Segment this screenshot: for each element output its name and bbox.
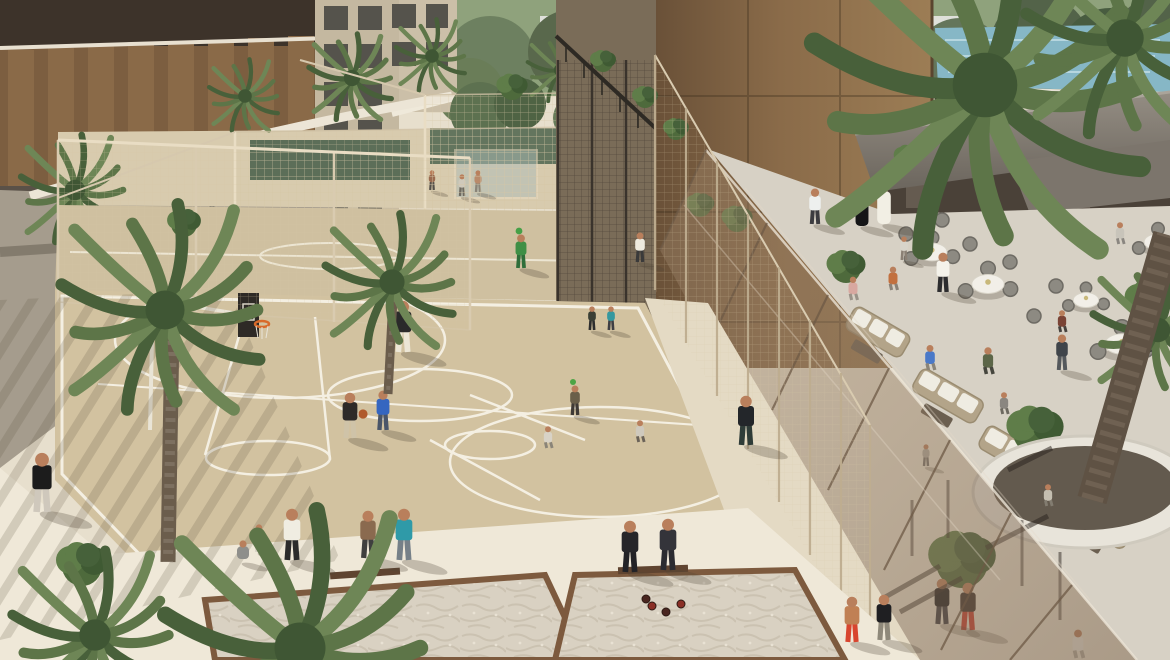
head [572, 385, 579, 392]
torso [983, 354, 993, 367]
torso [1116, 228, 1124, 239]
table-food [1084, 296, 1088, 300]
torso [237, 546, 249, 559]
foliage [508, 74, 522, 88]
head [879, 595, 890, 606]
torso [1000, 398, 1008, 409]
head [35, 453, 49, 467]
sports-deck-rendering [0, 0, 1170, 660]
head [984, 347, 991, 354]
torso [1044, 490, 1052, 501]
ball [516, 228, 523, 235]
head [901, 236, 907, 242]
chair [1063, 300, 1074, 311]
rendering-canvas [0, 0, 1170, 660]
chair [981, 261, 996, 276]
head [740, 396, 752, 408]
head [345, 393, 356, 404]
head [938, 253, 947, 262]
torso [1058, 316, 1066, 327]
head [890, 267, 896, 273]
head [517, 235, 525, 243]
head [239, 540, 246, 547]
foliage [842, 251, 860, 269]
head [624, 521, 636, 533]
torso [937, 261, 950, 277]
torso [570, 392, 580, 404]
head [850, 277, 856, 283]
head [608, 306, 614, 312]
torso [622, 531, 639, 552]
torso [660, 529, 677, 550]
chair [1003, 255, 1017, 269]
chair [963, 237, 977, 251]
foliage [76, 543, 100, 567]
chair [1080, 282, 1091, 293]
head [847, 597, 858, 608]
torso [396, 519, 413, 540]
torso [809, 196, 821, 210]
head [637, 232, 644, 239]
torso [1056, 342, 1068, 356]
torso [588, 311, 596, 321]
chair [1098, 298, 1109, 309]
head [1001, 392, 1007, 398]
palm-crown [953, 53, 1018, 118]
torso [607, 311, 615, 321]
head [286, 509, 298, 521]
palm-crown [425, 49, 439, 63]
head [1117, 222, 1123, 228]
torso [343, 402, 358, 420]
head [811, 189, 819, 197]
foliage [1028, 407, 1054, 433]
head [362, 511, 373, 522]
boule-ball [642, 595, 650, 603]
table-food [985, 279, 991, 285]
torso [738, 406, 754, 426]
torso [636, 426, 644, 437]
torso [360, 521, 375, 540]
chair [1049, 279, 1063, 293]
palm-crown [145, 290, 184, 329]
foliage [600, 51, 612, 63]
head [927, 345, 934, 352]
ball [570, 379, 576, 385]
head [545, 426, 551, 432]
boule-ball [662, 608, 670, 616]
head [637, 420, 643, 426]
palm-crown [79, 619, 110, 650]
ball [358, 409, 367, 418]
chair [1133, 242, 1145, 254]
torso [32, 465, 51, 489]
torso [377, 399, 390, 415]
palm-crown [1106, 19, 1143, 56]
torso [516, 241, 527, 255]
palm-crown [238, 89, 252, 103]
torso [845, 606, 860, 624]
head [589, 306, 595, 312]
torso [849, 283, 858, 295]
torso [925, 351, 935, 364]
torso [877, 604, 892, 622]
chair [1027, 309, 1041, 323]
torso [900, 241, 908, 251]
torso [544, 432, 552, 443]
boule-ball [648, 602, 656, 610]
torso [284, 519, 301, 540]
head [1045, 484, 1051, 490]
palm-crown [379, 269, 404, 294]
foliage [642, 87, 654, 99]
head [1058, 335, 1066, 343]
torso [635, 239, 645, 251]
head [662, 519, 674, 531]
boule-ball [677, 600, 685, 608]
chair [1003, 282, 1018, 297]
torso [889, 273, 898, 285]
head [1059, 310, 1065, 316]
head [398, 509, 410, 521]
